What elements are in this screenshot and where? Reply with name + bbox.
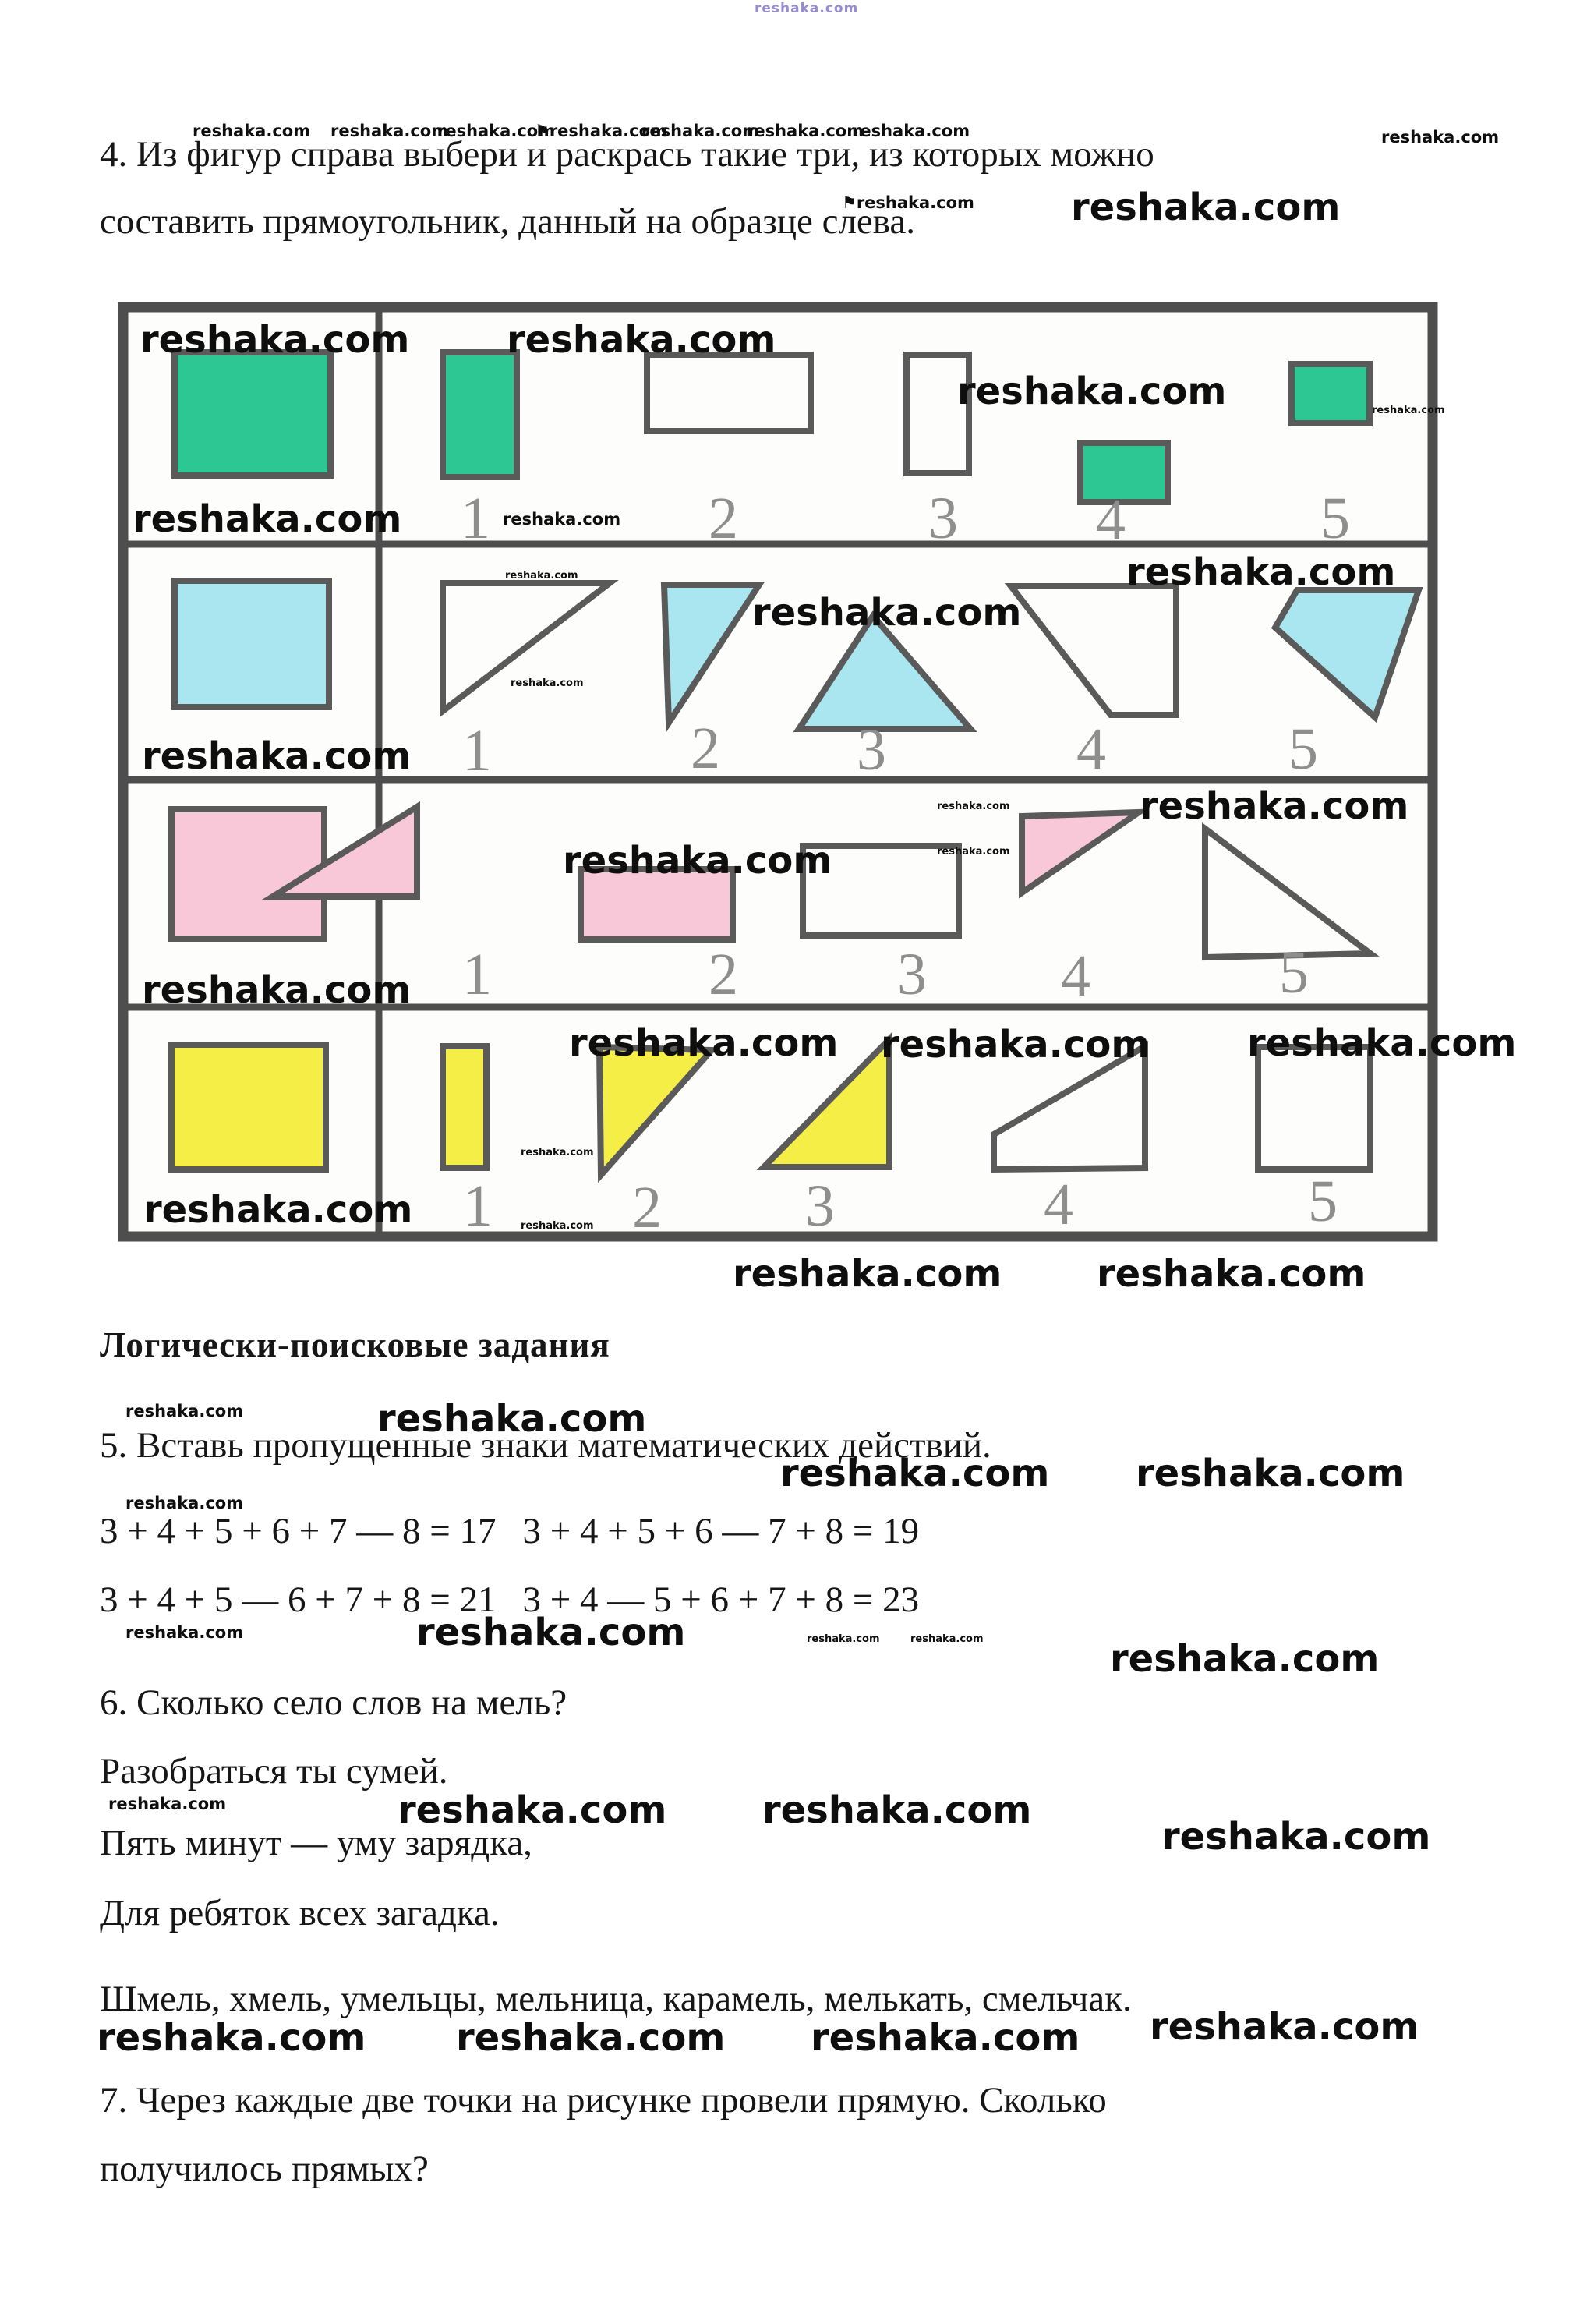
site-watermark: reshaka.com	[807, 1634, 880, 1644]
site-watermark: reshaka.com	[133, 501, 401, 538]
equation-1: 3 + 4 + 5 + 6 + 7 — 8 = 17	[100, 1511, 497, 1551]
figure-number-green-1: 1	[461, 486, 490, 551]
site-watermark: reshaka.com	[456, 2019, 725, 2057]
figure-number-pink-4: 4	[1061, 943, 1090, 1009]
figure-shape-green-5	[1292, 364, 1370, 423]
figure-number-green-5: 5	[1320, 486, 1350, 551]
figure-number-pink-2: 2	[709, 942, 738, 1007]
task7-text-line1: 7. Через каждые две точки на рисунке про…	[100, 2080, 1107, 2121]
figure-number-green-4: 4	[1096, 487, 1126, 553]
equation-2: 3 + 4 + 5 + 6 — 7 + 8 = 19	[523, 1511, 920, 1551]
site-watermark: reshaka.com	[957, 373, 1226, 410]
task4-text-line2: составить прямоугольник, данный на образ…	[100, 201, 915, 242]
figure-number-green-2: 2	[709, 486, 738, 551]
site-watermark-top: reshaka.com	[755, 2, 858, 16]
site-watermark: reshaka.com	[1372, 405, 1445, 416]
site-watermark: reshaka.com	[140, 321, 409, 359]
site-watermark: reshaka.com	[780, 1455, 1049, 1492]
site-watermark: reshaka.com	[377, 1400, 646, 1438]
site-watermark: reshaka.com	[142, 971, 411, 1009]
site-watermark: reshaka.com	[511, 678, 584, 688]
task6-title: 6. Сколько село слов на мель?	[100, 1682, 567, 1724]
site-watermark: reshaka.com	[881, 1026, 1150, 1063]
site-watermark: reshaka.com	[910, 1634, 984, 1644]
site-watermark: reshaka.com	[641, 123, 759, 140]
sample-shape-green	[175, 352, 330, 476]
figure-shape-green-1	[443, 352, 517, 477]
section-heading: Логически-поисковые задания	[100, 1325, 610, 1364]
task6-word-list: Шмель, хмель, умельцы, мельница, карамел…	[100, 1979, 1132, 2020]
site-watermark: reshaka.com	[1161, 1818, 1430, 1855]
figure-number-yellow-4: 4	[1044, 1172, 1073, 1237]
site-watermark: reshaka.com	[762, 1792, 1031, 1829]
site-watermark: reshaka.com	[125, 1495, 243, 1512]
figure-number-blue-3: 3	[857, 717, 886, 783]
site-watermark: reshaka.com	[193, 123, 310, 140]
site-watermark: reshaka.com	[1097, 1255, 1366, 1293]
figure-number-pink-1: 1	[462, 942, 492, 1007]
sample-shape-blue	[175, 581, 329, 707]
site-watermark: reshaka.com	[521, 1221, 594, 1231]
site-watermark: reshaka.com	[852, 123, 970, 140]
site-watermark: reshaka.com	[125, 1403, 243, 1420]
task5-equation-line1: 3 + 4 + 5 + 6 + 7 — 8 = 173 + 4 + 5 + 6 …	[100, 1511, 919, 1552]
site-watermark: reshaka.com	[503, 511, 620, 528]
figure-number-pink-5: 5	[1279, 940, 1309, 1006]
site-watermark: reshaka.com	[569, 1024, 838, 1062]
site-watermark: reshaka.com	[142, 738, 411, 775]
site-watermark: reshaka.com	[507, 321, 776, 359]
site-watermark: reshaka.com	[1126, 554, 1395, 591]
site-watermark: reshaka.com	[416, 1614, 685, 1651]
figure-number-blue-1: 1	[462, 718, 492, 784]
site-watermark: reshaka.com	[398, 1792, 666, 1829]
site-watermark: reshaka.com	[746, 123, 864, 140]
figure-number-green-3: 3	[928, 486, 958, 551]
site-watermark: reshaka.com	[108, 1796, 226, 1813]
task6-poem-line3: Для ребяток всех загадка.	[100, 1893, 500, 1934]
site-watermark: reshaka.com	[733, 1255, 1002, 1293]
site-watermark: reshaka.com	[143, 1191, 412, 1229]
figure-number-blue-4: 4	[1076, 716, 1106, 782]
site-watermark: reshaka.com	[505, 571, 578, 581]
figure-number-blue-2: 2	[691, 716, 720, 781]
figure-number-yellow-3: 3	[805, 1173, 835, 1239]
site-watermark: reshaka.com	[97, 2019, 366, 2057]
site-watermark: reshaka.com	[1381, 129, 1499, 146]
task6-poem-line1: Разобраться ты сумей.	[100, 1751, 448, 1792]
sample-shape-pink	[171, 809, 324, 939]
site-watermark: reshaka.com	[1150, 2008, 1419, 2046]
sample-shape-yellow	[171, 1045, 326, 1169]
figure-shape-yellow-5	[1258, 1047, 1370, 1169]
site-watermark: reshaka.com	[937, 801, 1010, 812]
site-watermark: reshaka.com	[125, 1625, 243, 1641]
site-watermark: reshaka.com	[937, 847, 1010, 857]
figure-number-yellow-1: 1	[463, 1173, 493, 1239]
figure-number-pink-3: 3	[897, 942, 927, 1007]
site-watermark: reshaka.com	[1110, 1640, 1379, 1678]
site-watermark: reshaka.com	[1140, 787, 1408, 825]
figure-number-yellow-2: 2	[632, 1175, 662, 1240]
figure-number-blue-5: 5	[1288, 716, 1318, 782]
site-watermark: reshaka.com	[330, 123, 448, 140]
figure-shape-yellow-1	[443, 1046, 486, 1168]
site-watermark: ⚑reshaka.com	[842, 195, 974, 211]
site-watermark: reshaka.com	[1247, 1024, 1516, 1062]
figure-number-yellow-5: 5	[1308, 1169, 1338, 1234]
worksheet-page: 12345123451234512345 4. Из фигур справа …	[0, 0, 1594, 2324]
site-watermark: reshaka.com	[752, 594, 1021, 631]
site-watermark: reshaka.com	[1071, 189, 1340, 226]
site-watermark: reshaka.com	[563, 842, 832, 879]
site-watermark: reshaka.com	[521, 1148, 594, 1158]
site-watermark: reshaka.com	[1136, 1455, 1405, 1492]
site-watermark: reshaka.com	[811, 2019, 1080, 2057]
figure-shape-green-2	[647, 355, 811, 431]
task7-text-line2: получилось прямых?	[100, 2149, 429, 2190]
